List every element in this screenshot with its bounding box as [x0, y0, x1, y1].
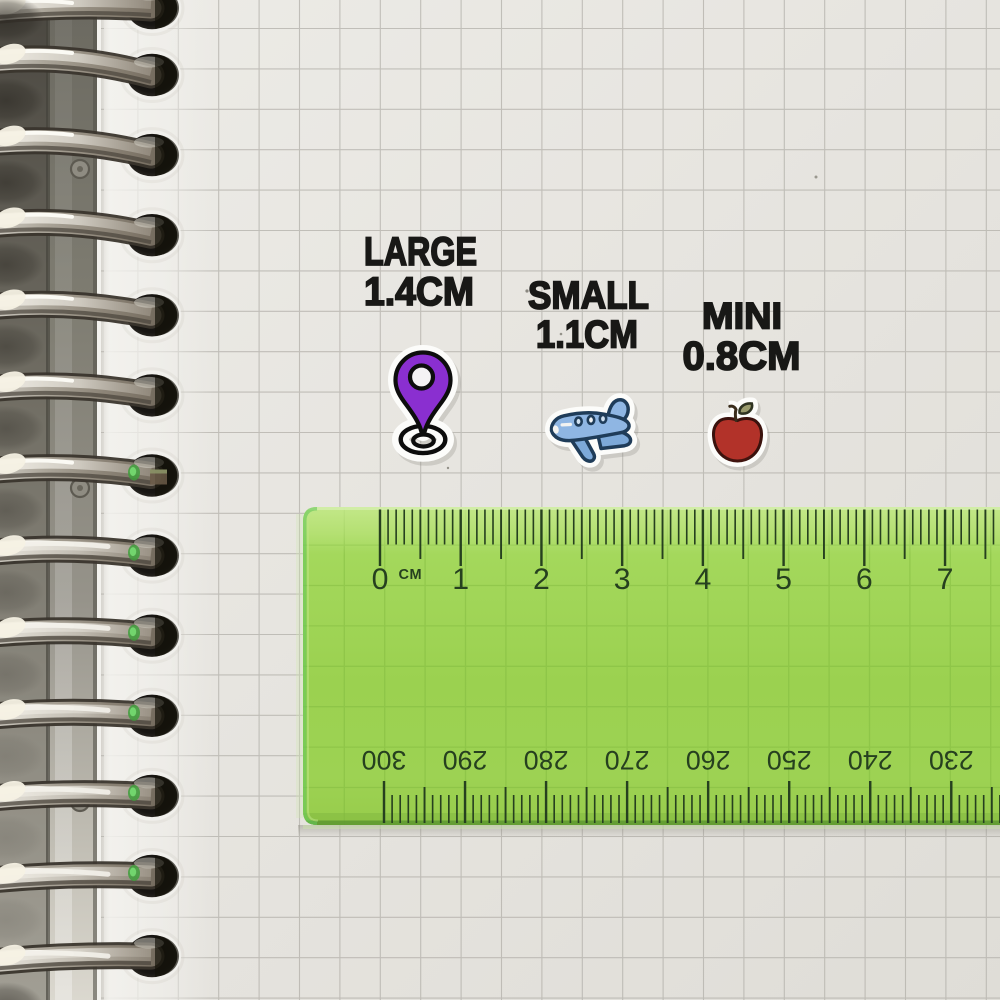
svg-text:SMALL: SMALL [528, 275, 649, 318]
svg-text:4: 4 [694, 563, 711, 596]
svg-text:0: 0 [372, 563, 389, 596]
svg-text:1.4CM: 1.4CM [364, 270, 474, 314]
svg-text:5: 5 [775, 563, 792, 596]
svg-text:MINI: MINI [702, 296, 782, 337]
svg-text:250: 250 [767, 745, 812, 775]
svg-text:280: 280 [524, 745, 569, 775]
svg-text:3: 3 [614, 563, 631, 596]
svg-text:1: 1 [452, 563, 469, 596]
svg-text:1.1CM: 1.1CM [536, 314, 638, 357]
svg-text:300: 300 [362, 745, 407, 775]
svg-text:6: 6 [856, 563, 873, 596]
svg-text:2: 2 [533, 563, 550, 596]
svg-text:LARGE: LARGE [364, 230, 477, 274]
svg-text:0.8CM: 0.8CM [683, 335, 801, 379]
svg-text:240: 240 [848, 745, 893, 775]
svg-text:7: 7 [937, 563, 954, 596]
svg-text:260: 260 [686, 745, 731, 775]
svg-text:270: 270 [605, 745, 650, 775]
svg-text:CM: CM [399, 567, 423, 583]
svg-text:230: 230 [929, 745, 974, 775]
svg-text:290: 290 [443, 745, 488, 775]
